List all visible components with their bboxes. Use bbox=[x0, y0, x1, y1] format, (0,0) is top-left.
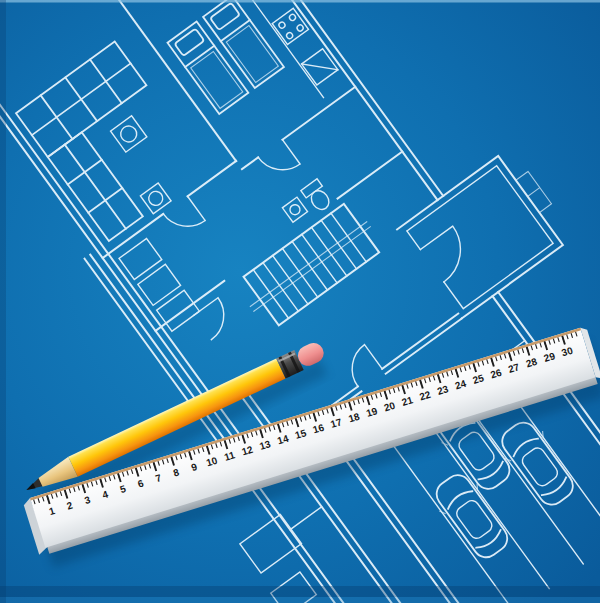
scene-canvas: 1234567891011121314151617181920212223242… bbox=[0, 0, 600, 603]
top-edge-highlight bbox=[0, 0, 600, 3]
left-edge-shade bbox=[0, 0, 6, 603]
blueprint-scene: 1234567891011121314151617181920212223242… bbox=[0, 0, 600, 603]
bottom-dark-band bbox=[0, 586, 600, 597]
bottom-light-band bbox=[0, 597, 600, 603]
